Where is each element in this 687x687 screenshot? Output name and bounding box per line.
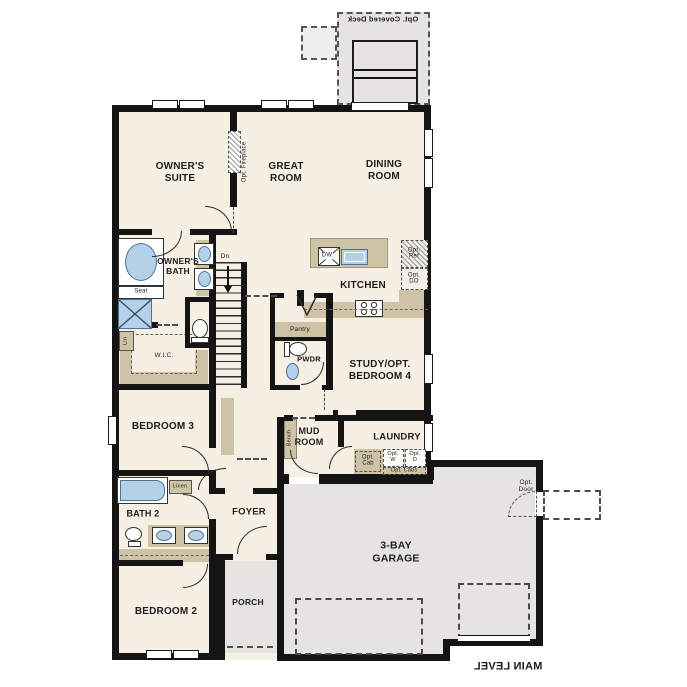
toilet bbox=[125, 527, 142, 541]
hall-closet-shelf bbox=[221, 398, 234, 455]
garage-door bbox=[458, 635, 530, 642]
room-label-bath2: BATH 2 bbox=[126, 509, 159, 520]
opt-fireplace-box bbox=[228, 131, 241, 173]
wall bbox=[185, 297, 190, 347]
deck-label: Opt. Covered Deck bbox=[348, 15, 419, 24]
window bbox=[152, 100, 178, 109]
deck-step-line bbox=[354, 77, 416, 79]
wall bbox=[536, 460, 543, 646]
room-label-owners-bath: OWNER'S BATH bbox=[157, 256, 199, 276]
wall bbox=[209, 554, 233, 560]
wall bbox=[430, 460, 543, 467]
laundry-service-door bbox=[424, 423, 433, 452]
wall bbox=[112, 105, 119, 660]
window bbox=[261, 100, 287, 109]
wall bbox=[275, 337, 326, 341]
sink bbox=[286, 363, 299, 380]
sink bbox=[156, 530, 172, 541]
sink bbox=[198, 246, 211, 262]
window bbox=[288, 100, 314, 109]
window bbox=[173, 650, 199, 659]
wall bbox=[266, 554, 284, 560]
pantry-label: Pantry bbox=[290, 326, 310, 334]
wall bbox=[319, 474, 433, 484]
wall bbox=[277, 654, 450, 661]
room-label-garage: 3-BAY GARAGE bbox=[372, 539, 419, 564]
room-label-great-room: GREAT ROOM bbox=[268, 161, 303, 185]
opt-washer-label: Opt. W bbox=[387, 452, 398, 464]
counter-edge-dashed bbox=[304, 309, 428, 310]
room-label-foyer: FOYER bbox=[232, 506, 266, 517]
opt-cabs-label: Opt. Cabs bbox=[391, 468, 418, 475]
opt-door-label: Opt. Door bbox=[519, 479, 534, 493]
opening-dashed bbox=[156, 324, 178, 326]
wall-dashed bbox=[233, 207, 234, 233]
wall bbox=[277, 417, 284, 661]
wall bbox=[270, 385, 300, 390]
wall bbox=[209, 556, 225, 660]
dishwasher-label: DW bbox=[321, 252, 333, 259]
toilet-tank bbox=[128, 541, 141, 547]
wall bbox=[241, 262, 247, 388]
wall bbox=[326, 293, 333, 390]
window bbox=[424, 354, 433, 384]
opt-ref-label: Opt. Ref bbox=[408, 248, 420, 261]
room-label-kitchen: KITCHEN bbox=[340, 280, 386, 292]
room-label-study: STUDY/OPT. BEDROOM 4 bbox=[349, 359, 411, 383]
garage-bay-outline bbox=[458, 583, 530, 640]
wall bbox=[112, 384, 216, 390]
garage-bay-outline bbox=[295, 598, 423, 655]
window bbox=[179, 100, 205, 109]
room-label-laundry: LAUNDRY bbox=[373, 431, 421, 442]
window bbox=[424, 129, 433, 157]
wall bbox=[253, 488, 284, 494]
deck-step-line bbox=[354, 69, 416, 71]
closet-rod-line bbox=[120, 555, 209, 556]
opt-dryer-label: Opt. D bbox=[409, 452, 420, 464]
toilet-tank bbox=[284, 342, 290, 357]
floor-plan: Opt. Covered Deck OWNER'S SUITE GREAT RO… bbox=[0, 0, 687, 687]
sink bbox=[198, 271, 211, 287]
deck-door bbox=[351, 102, 409, 111]
room-label-pwdr: PWDR bbox=[297, 355, 321, 364]
kitchen-sink-basin bbox=[344, 252, 365, 262]
opening-dashed bbox=[292, 417, 315, 419]
pantry-door-icon bbox=[296, 294, 318, 317]
wall bbox=[270, 293, 275, 390]
opening-dashed bbox=[237, 458, 267, 460]
stairs-arrow bbox=[227, 266, 229, 286]
toilet-tank bbox=[191, 337, 209, 343]
opt-door-landing bbox=[543, 490, 601, 520]
room-label-mud-room: MUD ROOM bbox=[295, 426, 324, 448]
room-label-bedroom3: BEDROOM 3 bbox=[132, 421, 194, 433]
wall bbox=[338, 415, 344, 447]
stairs-cut-line bbox=[245, 295, 277, 297]
stairs-arrow-head bbox=[224, 286, 232, 293]
room-label-owners-suite: OWNER'S SUITE bbox=[156, 161, 205, 185]
wall bbox=[277, 474, 289, 484]
linen-label: Linen bbox=[173, 484, 187, 491]
room-label-porch: PORCH bbox=[232, 597, 264, 607]
opt-cab-label: Opt. Cab bbox=[362, 455, 374, 468]
deck-structure bbox=[352, 40, 418, 104]
wall bbox=[427, 460, 434, 480]
opt-fireplace-label: Opt. Fireplace bbox=[241, 142, 248, 182]
bathtub-basin bbox=[120, 480, 165, 501]
stairs-dn-label: Dn bbox=[221, 253, 230, 261]
window bbox=[108, 416, 117, 445]
window bbox=[146, 650, 172, 659]
opt-do-label: Opt. DO bbox=[408, 273, 420, 286]
toilet bbox=[192, 319, 208, 338]
shower-glass-icon bbox=[118, 299, 152, 329]
opening-dashed bbox=[324, 389, 325, 410]
room-label-wic: W.I.C. bbox=[155, 352, 174, 360]
seat-label: Seat bbox=[134, 288, 147, 295]
wall bbox=[112, 560, 183, 566]
wall bbox=[112, 229, 152, 235]
window bbox=[424, 158, 433, 188]
lin-label: Lin bbox=[123, 337, 130, 345]
sink bbox=[188, 530, 204, 541]
room-label-bedroom2: BEDROOM 2 bbox=[135, 606, 197, 618]
room-label-dining-room: DINING ROOM bbox=[366, 159, 402, 183]
bench-label: Bench bbox=[287, 430, 294, 447]
main-level-label: MAIN LEVEL bbox=[474, 660, 543, 673]
deck-optional-stair bbox=[301, 26, 337, 60]
wall bbox=[315, 415, 433, 421]
porch-edge-dashed bbox=[227, 646, 273, 648]
